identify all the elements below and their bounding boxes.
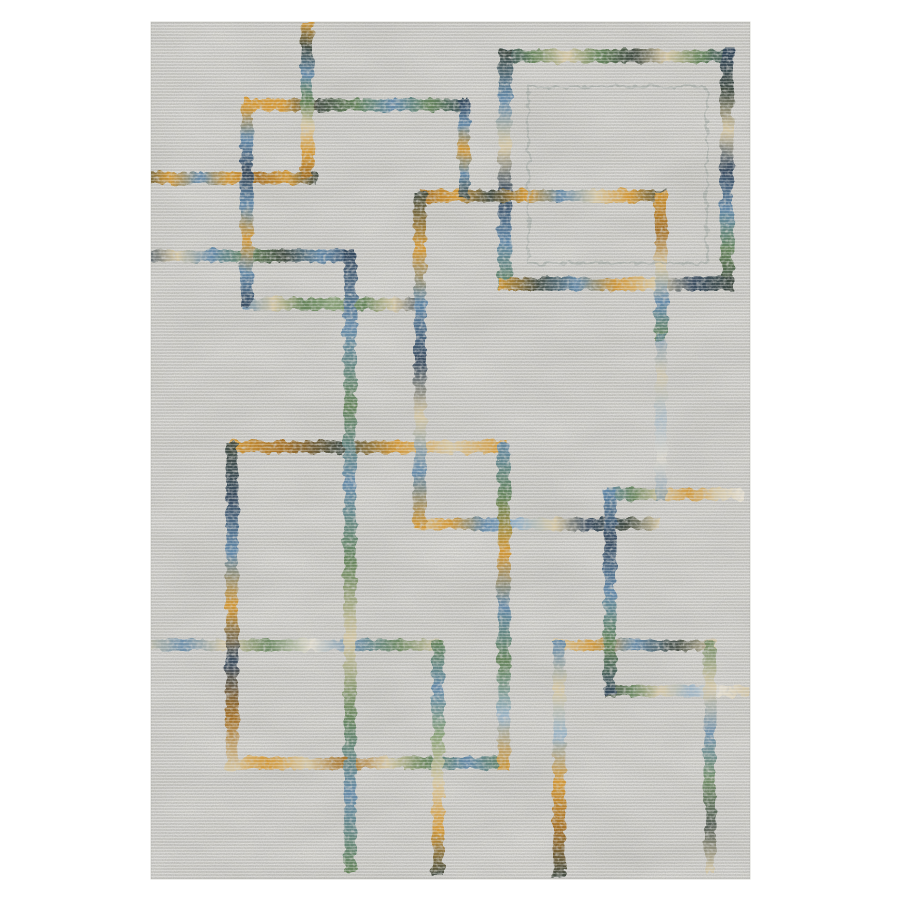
rug-weave-ribs [151, 22, 750, 879]
rug-product-photo [0, 0, 900, 900]
product-photo-page [0, 0, 900, 900]
